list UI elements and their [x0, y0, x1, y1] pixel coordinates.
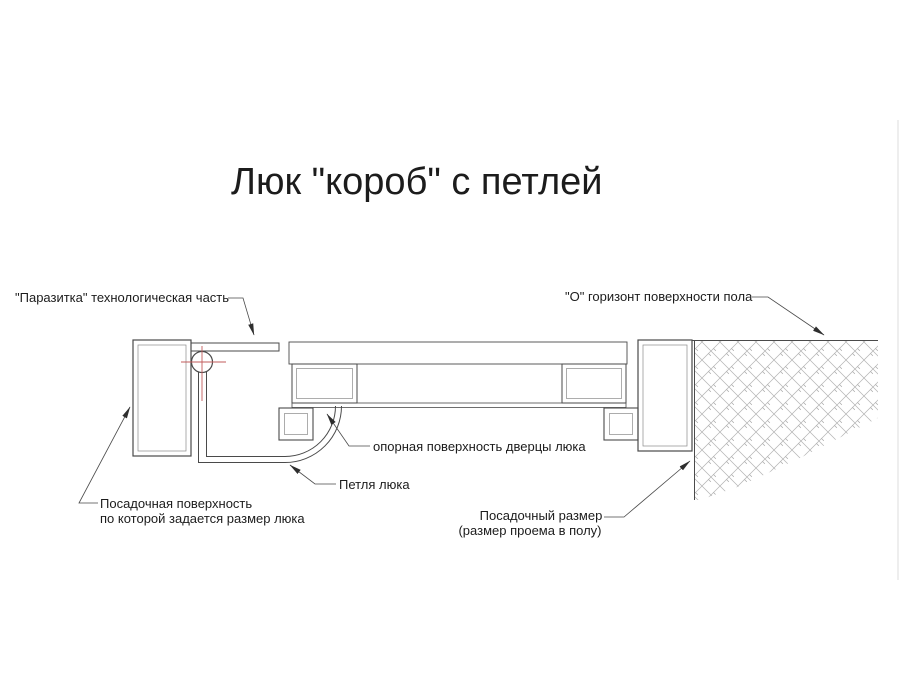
label-floor-horizon: "О" горизонт поверхности пола — [565, 289, 753, 304]
right-support-tube — [604, 408, 638, 440]
leader-door-support — [327, 414, 370, 446]
door-left-profile — [292, 364, 357, 403]
center-mark — [181, 346, 226, 401]
hinge-pivot — [181, 346, 226, 401]
door-top-slab — [289, 342, 627, 364]
door-right-profile — [562, 364, 626, 403]
leader-hinge — [290, 465, 336, 484]
hatch-diagram-page: Люк "короб" с петлей — [0, 0, 900, 700]
hatch-door — [289, 342, 627, 408]
label-door-support-surface: опорная поверхность дверцы люка — [373, 439, 586, 454]
floor-body — [692, 341, 878, 501]
leader-seat-surface — [79, 407, 130, 503]
left-frame-profile — [133, 340, 191, 456]
door-bottom-sheet — [292, 403, 626, 408]
label-seat-size-line2: (размер проема в полу) — [458, 523, 601, 538]
floor-hatch-area — [695, 341, 879, 500]
label-hinge: Петля люка — [339, 477, 410, 492]
label-seat-surface-line1: Посадочная поверхность — [100, 496, 252, 511]
hatch-section-drawing: Люк "короб" с петлей — [0, 0, 900, 700]
label-parasitka: "Паразитка" технологическая часть — [15, 290, 229, 305]
left-support-tube — [279, 408, 313, 440]
leader-parasitka — [228, 298, 254, 335]
parasitka-plate — [191, 343, 279, 351]
label-seat-surface-line2: по которой задается размер люка — [100, 511, 305, 526]
page-title: Люк "короб" с петлей — [231, 161, 602, 203]
leader-seat-size — [604, 461, 690, 517]
right-frame-profile — [638, 340, 692, 451]
leader-floor-horizon — [752, 297, 824, 335]
label-seat-size-line1: Посадочный размер — [480, 508, 603, 523]
